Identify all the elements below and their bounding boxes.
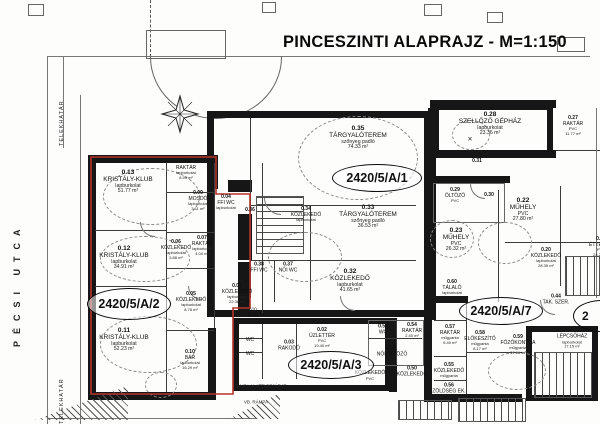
room-label: 0.44TAK. SZER. [543,294,570,305]
room-label: 0.35TÁRGYALÓTEREMszőnyeg padló74.33 m² [329,125,387,151]
unit-number: 2420/5/A/7 [470,304,531,318]
room-label: 0.30 [484,193,494,199]
entry-label: RÁMPA ALATTI BEJÁRAT [234,384,287,389]
room-label: 0.34KÖZLEKEDŐlapburkolat [291,207,322,223]
room-label: 0.29ÖLTÖZŐPVC [445,188,465,204]
room-label: 0.05KÖZLEKEDŐlapburkolat8.78 m² [176,292,207,312]
room-label: 0.55KÖZLEKEDŐműgyanta [434,363,465,379]
unit-number-ellipse: 2420/5/A/1 [332,164,422,192]
room-label: 0.01KÖZLEKEDŐlapburkolat22.36 m² [222,284,253,304]
room-label: 0.38FFI WC [250,262,267,273]
dimension-text: 610 [249,307,257,312]
unit-number: 2420/5/A/1 [346,171,407,185]
room-label: 0.31 [472,159,482,165]
unit-number-ellipse: 2420/5/A/7 [459,297,543,325]
ramp-label: VB. RÁMPA [244,400,268,405]
room-label: 0.04FFI WClapburkolat [216,195,236,211]
room-label: 0.13KRISTÁLY-KLUBlapburkolat51.77 m² [103,169,153,195]
room-label: 0.06KÖZLEKEDŐlapburkolat3.88 m² [161,240,192,260]
room-label: 0.58ELŐKÉSZÍTŐműgyanta8.17 m² [464,331,495,351]
street-label: PÉCSI UTCA [12,142,22,347]
room-label: 0.33TÁRGYALÓTEREMszőnyeg padló36.53 m² [339,204,397,230]
room-label: 0.27RAKTÁRPVC11.77 m² [563,116,583,136]
room-label: LÉPCSŐHÁZlapburkolat17.15 m² [557,335,587,350]
room-label: 0.53WC [378,324,388,335]
room-label: 0.57RAKTÁRműgyanta6.40 m² [440,325,460,345]
north-arrow-icon [160,94,200,134]
room-label: 0.07RAKTÁRlapburkolat4.04 m² [192,236,212,256]
room-label: 0.28SZELLŐZŐ GÉPHÁZlapburkolat23.36 m² [459,111,522,137]
room-label: 0.12KRISTÁLY-KLUBlapburkolat34.91 m² [99,245,149,271]
room-label: 0.50KÖZLEKEDŐ [397,366,428,377]
room-label: 0.54RAKTÁR2.40 m² [402,323,422,339]
room-label: 0.02ÜZLETTÉRPVC19.40 m² [309,328,335,348]
plot-boundary-label-bottom: TELEKHATÁR [59,384,65,424]
unit-number-ellipse: 2420/5/A/2 [87,288,171,320]
plot-boundary-label-top: TELEKHATÁR [59,98,65,146]
room-label: WC [246,338,254,344]
room-label: 0.60TÁLALÓlapburkolat [442,280,462,296]
room-label: 0.56ZÖLDSÉG EK. [432,383,465,394]
cross-mark: × [468,135,473,144]
unit-number: 2 [582,309,589,323]
room-label: 0.21ÉTTEREMPVC24.20 m² [589,237,600,257]
room-label: 0.03RAKODÓ [278,340,300,351]
room-label: 0.37NŐI WC [279,262,298,273]
drawing-title: PINCESZINTI ALAPRAJZ - M=1:150 [283,33,567,52]
room-label: 0.23MŰHELYPVC26.32 m² [443,227,470,253]
room-label: 0.10BÁRlapburkolat16.29 m² [180,350,200,370]
room-label: 0.51NŐI ÖLTÖZŐ [377,346,407,357]
room-label: 0.59FŐZŐKONYHAműgyanta37.66 m² [500,335,535,355]
unit-number-ellipse: 2420/5/A/3 [288,351,374,379]
unit-number: 2420/5/A/2 [98,297,159,311]
room-label: 0.06 [248,314,258,320]
room-label: 0.20KÖZLEKEDŐlapburkolat28.35 m² [531,248,562,268]
room-label: 0.36 [245,208,255,214]
room-label: 0.11KRISTÁLY-KLUBlapburkolat52.23 m² [99,327,149,353]
room-label: 0.09MOSDÓlapburkolat3.11 m² [188,191,208,211]
floor-plan: PINCESZINTI ALAPRAJZ - M=1:150 PÉCSI UTC… [0,0,600,424]
unit-number: 2420/5/A/3 [300,358,361,372]
room-label: 0.08RAKTÁRlapburkolat8.99 m² [176,160,196,180]
room-label: WC [246,352,254,358]
room-label: 0.32KÖZLEKEDŐlapburkolat41.65 m² [330,268,370,294]
room-label: 0.22MŰHELYPVC27.80 m² [510,197,537,223]
